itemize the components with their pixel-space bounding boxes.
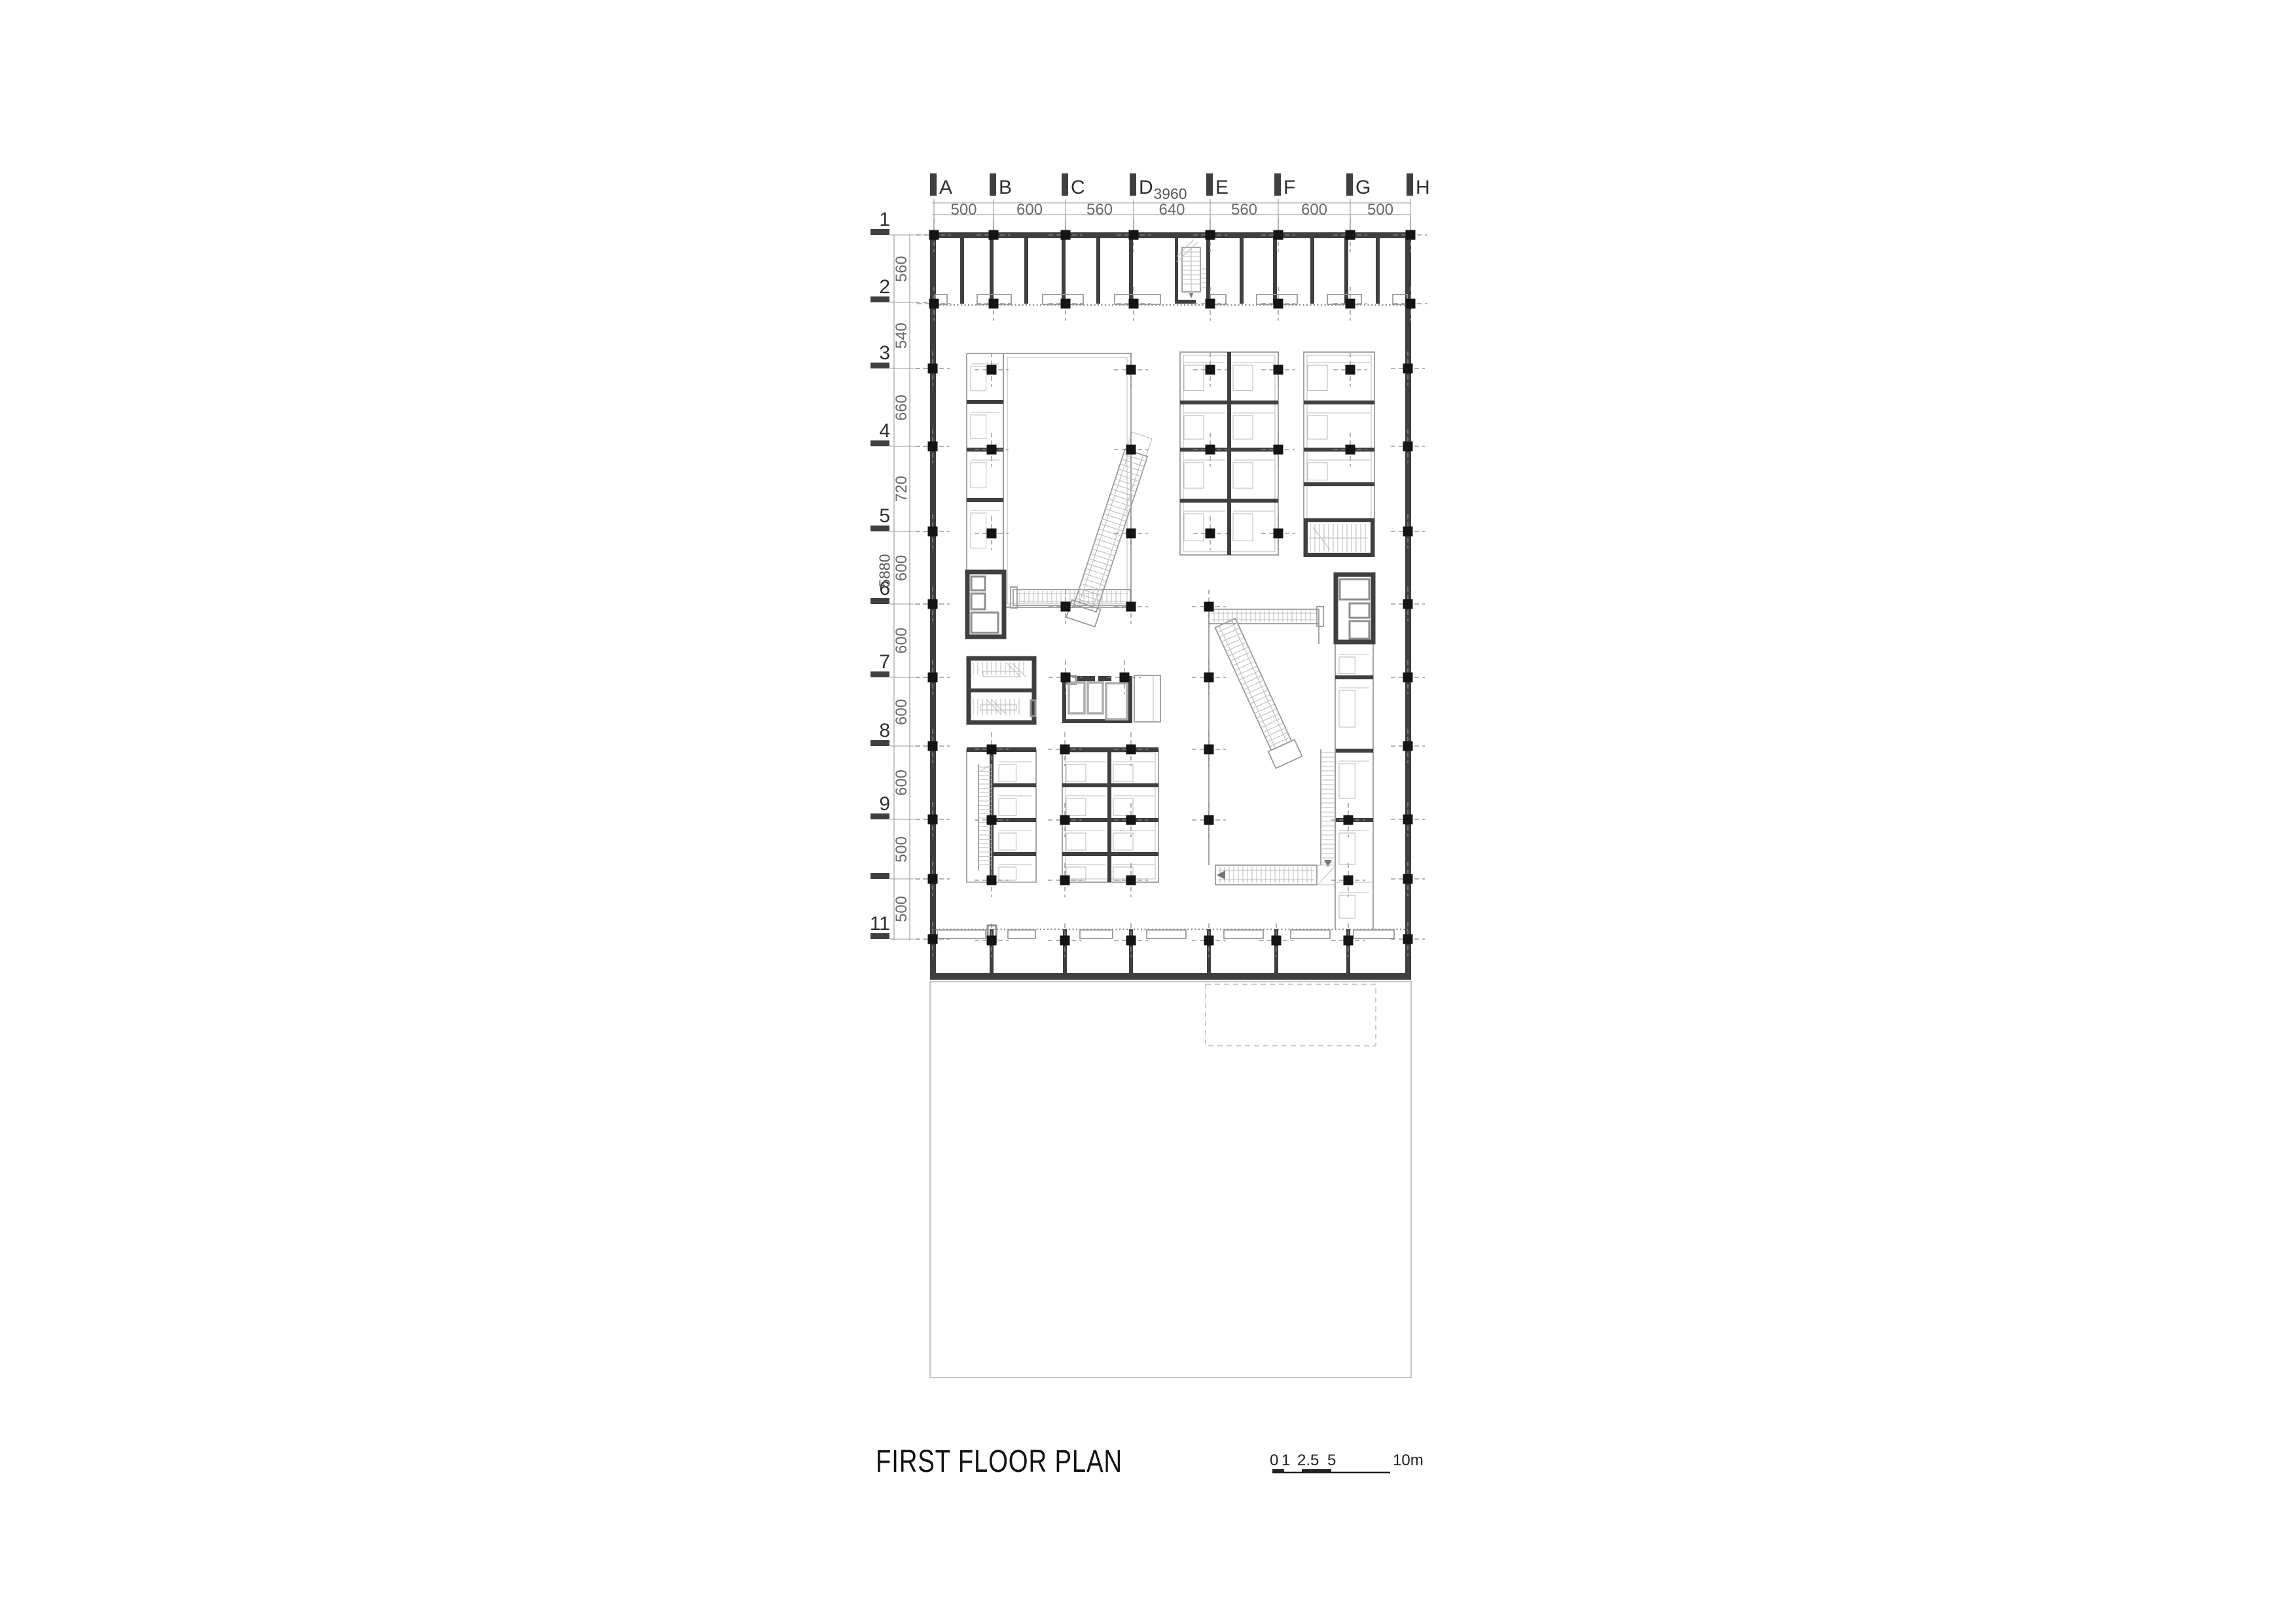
grid-overall-height-dim: 5880 (878, 554, 893, 587)
grid-row-dim: 600 (894, 554, 910, 580)
grid-column-label: G (1355, 178, 1371, 198)
grid-column-label: D (1139, 178, 1153, 198)
scale-bar-tick-label: 0 (1270, 1453, 1278, 1469)
grid-row-label: 5 (879, 507, 890, 526)
grid-column-dim: 560 (1086, 202, 1113, 218)
grid-column-dim: 560 (1231, 202, 1257, 218)
grid-column-label: A (939, 178, 952, 198)
grid-row-label: 8 (879, 721, 890, 741)
grid-row-dim: 500 (894, 836, 910, 862)
scale-bar-unit-label: 10m (1393, 1453, 1424, 1469)
grid-row-label: 9 (879, 794, 890, 814)
scale-bar-tick-label: 2.5 (1297, 1453, 1319, 1469)
grid-column-dim: 500 (950, 202, 977, 218)
grid-row-dim: 660 (894, 394, 910, 420)
grid-row-dim: 540 (894, 322, 910, 348)
floor-plan-sheet: ABCDEFGH50060056064056060050039601234567… (0, 0, 2296, 1623)
grid-column-dim: 600 (1016, 202, 1043, 218)
grid-row-dim: 720 (894, 476, 910, 502)
grid-row-label: 3 (879, 344, 890, 363)
grid-row-dim: 560 (894, 255, 910, 281)
drawing-title: FIRST FLOOR PLAN (876, 1446, 1122, 1478)
text-labels: ABCDEFGH50060056064056060050039601234567… (0, 0, 2296, 1623)
grid-row-dim: 500 (894, 896, 910, 922)
grid-row-label: 11 (870, 914, 890, 934)
grid-row-label: 2 (879, 277, 890, 297)
grid-row-dim: 600 (894, 628, 910, 654)
scale-bar-tick-label: 5 (1327, 1453, 1336, 1469)
grid-column-label: E (1215, 178, 1229, 198)
grid-row-dim: 600 (894, 698, 910, 724)
grid-column-label: H (1416, 178, 1430, 198)
grid-overall-width-dim: 3960 (1153, 187, 1187, 202)
scale-bar-tick-label: 1 (1282, 1453, 1290, 1469)
grid-column-dim: 640 (1158, 202, 1185, 218)
grid-column-label: F (1283, 178, 1295, 198)
grid-row-label: 1 (879, 210, 890, 230)
grid-column-dim: 500 (1367, 202, 1393, 218)
grid-column-label: C (1071, 178, 1085, 198)
grid-row-dim: 600 (894, 770, 910, 796)
grid-column-label: B (999, 178, 1012, 198)
grid-column-dim: 600 (1301, 202, 1327, 218)
grid-row-label: 4 (879, 421, 890, 441)
grid-row-label: 7 (879, 652, 890, 672)
